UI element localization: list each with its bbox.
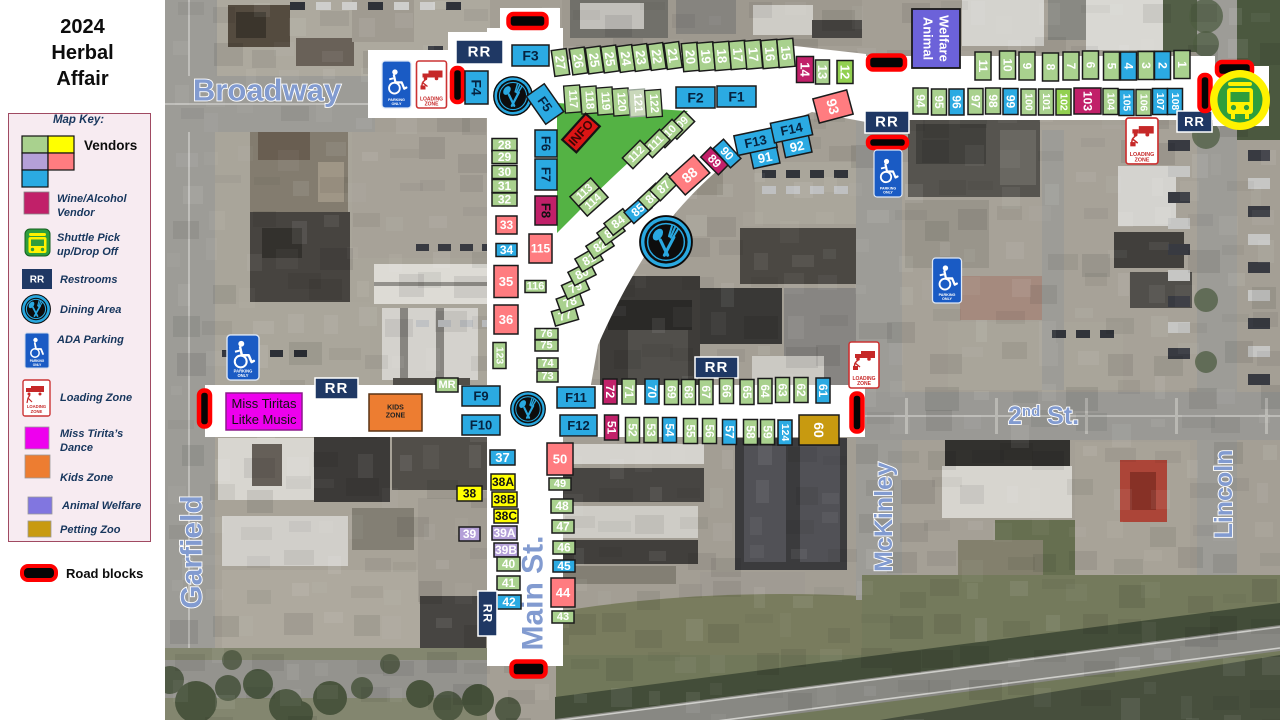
svg-text:17: 17 [730,47,746,63]
svg-text:F10: F10 [470,418,492,433]
svg-text:124: 124 [779,424,791,442]
svg-text:46: 46 [557,541,571,555]
svg-text:34: 34 [500,243,514,257]
svg-text:F4: F4 [469,79,485,96]
svg-text:38C: 38C [495,509,517,523]
svg-text:31: 31 [498,179,512,193]
svg-text:73: 73 [541,371,553,383]
svg-text:Dining Area: Dining Area [60,304,121,316]
svg-text:10: 10 [1001,58,1015,72]
svg-text:39B: 39B [495,543,517,557]
svg-text:96: 96 [950,95,964,109]
svg-text:F12: F12 [567,418,589,433]
svg-text:75: 75 [540,340,552,352]
svg-text:17: 17 [745,47,761,63]
svg-text:25: 25 [586,52,603,68]
svg-text:F7: F7 [539,167,554,182]
svg-text:RR: RR [1184,114,1205,129]
svg-text:35: 35 [499,274,513,289]
svg-text:108: 108 [1169,93,1181,111]
svg-text:49: 49 [554,478,566,490]
svg-text:107: 107 [1154,93,1166,111]
svg-text:65: 65 [740,385,754,399]
svg-text:100: 100 [1023,93,1035,111]
svg-text:Vendors: Vendors [84,138,137,153]
svg-text:120: 120 [614,92,627,112]
svg-text:3: 3 [1139,62,1153,69]
svg-text:Welfare: Welfare [937,15,952,62]
svg-text:37: 37 [495,450,509,465]
svg-text:62: 62 [794,383,808,397]
svg-text:71: 71 [622,385,636,399]
svg-text:117: 117 [566,89,579,108]
svg-text:23: 23 [633,49,650,65]
svg-text:70: 70 [645,385,659,399]
svg-text:39A: 39A [493,526,515,540]
svg-text:66: 66 [720,384,734,398]
svg-text:ONLY: ONLY [883,191,893,195]
svg-text:25: 25 [602,51,619,67]
svg-text:101: 101 [1040,93,1052,111]
svg-text:74: 74 [541,358,554,370]
svg-text:Broadway: Broadway [193,73,342,108]
svg-text:Miss Tirita’s: Miss Tirita’s [60,428,123,440]
svg-text:2nd St.: 2nd St. [1008,402,1079,430]
svg-text:Litke Music: Litke Music [231,412,297,427]
svg-text:Lincoln: Lincoln [1210,450,1238,539]
svg-text:103: 103 [1081,91,1095,111]
svg-text:54: 54 [663,423,677,437]
svg-text:76: 76 [540,328,552,340]
svg-text:95: 95 [932,95,946,109]
svg-text:40: 40 [502,557,516,571]
svg-text:102: 102 [1058,93,1070,111]
svg-text:Miss Tiritas: Miss Tiritas [232,396,298,411]
svg-text:Shuttle Pick: Shuttle Pick [57,232,121,244]
svg-text:19: 19 [698,49,714,65]
svg-text:45: 45 [557,559,571,573]
svg-text:38B: 38B [493,493,515,507]
svg-text:29: 29 [498,150,512,164]
svg-text:106: 106 [1138,94,1150,112]
svg-text:72: 72 [603,385,617,399]
svg-text:38: 38 [463,487,477,501]
svg-text:56: 56 [703,424,717,438]
svg-text:Restrooms: Restrooms [60,274,117,286]
svg-text:ZONE: ZONE [425,102,440,108]
svg-text:97: 97 [969,95,983,109]
svg-text:47: 47 [556,520,570,534]
svg-text:118: 118 [582,90,595,110]
svg-text:Road blocks: Road blocks [66,566,143,581]
svg-text:61: 61 [816,384,830,398]
svg-text:13: 13 [815,65,830,79]
svg-text:69: 69 [665,385,679,399]
svg-text:F8: F8 [539,203,554,218]
svg-text:58: 58 [744,425,758,439]
svg-text:99: 99 [1004,95,1018,109]
svg-text:67: 67 [699,385,713,399]
svg-text:Garfield: Garfield [176,495,209,608]
svg-text:16: 16 [762,46,778,62]
svg-text:119: 119 [598,91,611,110]
svg-text:20: 20 [682,49,698,65]
svg-text:2: 2 [1156,62,1170,69]
svg-text:ZONE: ZONE [857,381,872,387]
svg-text:ADA Parking: ADA Parking [56,334,124,346]
svg-text:32: 32 [498,193,512,207]
svg-text:68: 68 [682,385,696,399]
svg-text:KIDS: KIDS [387,405,404,412]
svg-text:F3: F3 [522,48,539,64]
svg-text:RR: RR [468,44,492,61]
svg-text:52: 52 [626,423,640,437]
svg-text:115: 115 [531,242,551,256]
svg-text:43: 43 [557,611,569,623]
svg-text:ZONE: ZONE [386,413,406,420]
svg-text:22: 22 [649,48,666,64]
svg-text:Loading Zone: Loading Zone [60,392,132,404]
svg-text:9: 9 [1020,63,1034,70]
svg-text:30: 30 [498,165,512,179]
svg-text:Dance: Dance [60,442,93,454]
svg-text:33: 33 [500,218,514,232]
svg-text:F1: F1 [728,89,745,105]
svg-text:8: 8 [1044,64,1058,71]
svg-text:105: 105 [1121,94,1133,112]
svg-text:ZONE: ZONE [31,409,43,414]
svg-text:Main St.: Main St. [517,535,550,650]
svg-text:F11: F11 [565,390,587,405]
svg-text:ONLY: ONLY [33,363,42,367]
svg-text:64: 64 [758,384,772,398]
svg-text:ONLY: ONLY [392,102,403,106]
svg-text:51: 51 [605,421,619,435]
svg-text:RR: RR [705,359,729,376]
svg-text:Animal: Animal [921,17,936,60]
svg-text:15: 15 [778,45,794,61]
svg-text:11: 11 [976,60,990,73]
svg-text:ZONE: ZONE [1135,157,1150,163]
svg-text:ONLY: ONLY [237,373,248,378]
svg-text:Animal Welfare: Animal Welfare [61,500,141,512]
svg-text:26: 26 [570,53,587,69]
svg-text:98: 98 [986,94,1000,108]
svg-text:Petting Zoo: Petting Zoo [60,524,121,536]
svg-text:MR: MR [438,379,455,391]
svg-text:12: 12 [838,65,853,79]
svg-text:RR: RR [481,604,495,623]
svg-text:1: 1 [1175,61,1189,68]
svg-text:5: 5 [1105,63,1119,70]
svg-text:55: 55 [684,424,698,438]
svg-text:18: 18 [714,48,730,64]
svg-text:F6: F6 [539,136,554,151]
svg-text:F9: F9 [473,389,488,404]
svg-text:24: 24 [618,50,635,67]
svg-text:50: 50 [553,452,567,467]
svg-text:RR: RR [325,380,349,397]
svg-text:ONLY: ONLY [942,297,953,301]
svg-text:42: 42 [502,595,516,609]
svg-text:27: 27 [552,54,569,70]
svg-text:F2: F2 [687,90,704,106]
svg-text:59: 59 [761,425,775,439]
svg-text:39: 39 [463,527,477,541]
svg-text:63: 63 [776,383,790,397]
svg-text:60: 60 [811,422,827,438]
svg-text:57: 57 [723,425,737,439]
svg-text:up/Drop Off: up/Drop Off [57,246,119,258]
svg-text:122: 122 [647,94,660,114]
svg-text:38A: 38A [492,475,514,489]
svg-text:4: 4 [1122,63,1136,70]
svg-text:7: 7 [1064,63,1078,70]
svg-text:94: 94 [914,94,928,108]
svg-text:21: 21 [665,47,682,63]
svg-text:6: 6 [1084,62,1098,69]
svg-text:McKinley: McKinley [870,462,898,572]
svg-text:14: 14 [798,62,813,77]
svg-text:Kids Zone: Kids Zone [60,472,113,484]
svg-text:41: 41 [502,576,516,590]
svg-text:Vendor: Vendor [57,207,95,219]
svg-text:RR: RR [875,114,899,131]
svg-text:53: 53 [644,423,658,437]
svg-text:RR: RR [30,275,45,286]
svg-text:36: 36 [499,312,513,327]
svg-text:121: 121 [631,93,644,114]
svg-text:44: 44 [556,585,571,600]
svg-text:92: 92 [788,138,805,156]
svg-text:104: 104 [1105,93,1117,111]
svg-text:48: 48 [555,499,569,513]
svg-text:123: 123 [494,347,506,365]
svg-text:116: 116 [527,281,545,293]
svg-text:Wine/Alcohol: Wine/Alcohol [57,193,128,205]
